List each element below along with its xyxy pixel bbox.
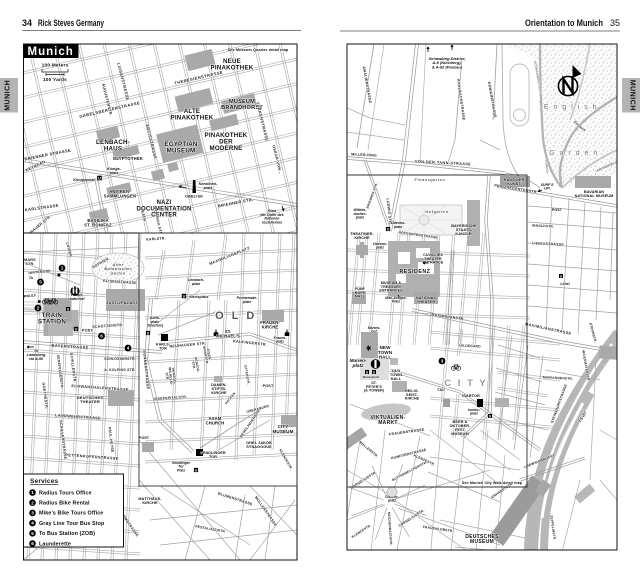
svg-text:JUSTIZPALAST: JUSTIZPALAST [106,300,138,305]
svg-text:RESIDENZ: RESIDENZ [399,269,430,275]
svg-text:4: 4 [31,521,34,526]
svg-text:Munich: Munich [28,46,74,58]
svg-text:NEWTOWNHALL: NEWTOWNHALL [378,345,393,360]
svg-text:U: U [195,469,198,473]
svg-text:U: U [75,328,78,332]
svg-text:Lehel: Lehel [560,282,570,286]
svg-text:Gray Line Tour Bus Stop: Gray Line Tour Bus Stop [39,521,105,527]
svg-text:Schwabing District,A-9 (Nürnbe: Schwabing District,A-9 (Nürnberg),& A-92… [428,56,465,69]
svg-text:MUNICH: MUNICH [5,80,12,111]
svg-text:Orientation to Munich: Orientation to Munich [525,18,603,29]
svg-text:MUSEUM &TREASURYENTRANCES: MUSEUM &TREASURYENTRANCES [379,281,403,293]
svg-text:Radius Bike Rental: Radius Bike Rental [39,501,90,507]
svg-text:A. KOLPING STR.: A. KOLPING STR. [104,368,135,372]
svg-text:FÜNFHÖFEMALL: FÜNFHÖFEMALL [355,286,366,299]
svg-text:See Museum Quarter detail map: See Museum Quarter detail map [228,48,289,52]
svg-text:35: 35 [610,18,620,29]
svg-text:6: 6 [31,541,34,546]
svg-text:HEILIG-GEIST-KIRCHE: HEILIG-GEIST-KIRCHE [405,389,420,401]
svg-text:EGYPTIANMUSEUM: EGYPTIANMUSEUM [164,141,198,155]
svg-text:OBELISK: OBELISK [185,195,203,199]
svg-text:To Bus Station (ZOB): To Bus Station (ZOB) [39,531,95,537]
svg-text:MUNICH: MUNICH [629,80,636,111]
svg-text:34: 34 [22,18,33,29]
svg-text:100 Yards: 100 Yards [43,77,67,83]
svg-text:E n g l i s h: E n g l i s h [544,104,598,111]
svg-text:BASILIKAST. BONIFAZ: BASILIKAST. BONIFAZ [84,218,112,227]
svg-text:Services: Services [30,478,59,485]
svg-text:Rick Steves Germany: Rick Steves Germany [38,18,104,29]
svg-text:POST: POST [139,436,150,440]
svg-text:6: 6 [100,334,103,339]
svg-text:GLYPTOTHEK: GLYPTOTHEK [113,156,143,161]
svg-text:ISARTOR: ISARTOR [462,394,480,398]
svg-text:1: 1 [31,490,34,495]
svg-text:4: 4 [127,346,130,351]
svg-text:C I T Y: C I T Y [444,378,487,389]
svg-text:O L D: O L D [215,310,257,322]
svg-text:Hofgarten: Hofgarten [425,209,448,214]
svg-text:Königsplatz: Königsplatz [73,178,95,182]
svg-text:3: 3 [441,359,444,364]
svg-text:U: U [387,228,390,232]
svg-text:MARSSTR.: MARSSTR. [24,258,36,266]
svg-text:5: 5 [39,280,42,285]
svg-text:G a r d e n: G a r d e n [549,150,599,157]
svg-text:100 Meters: 100 Meters [42,63,69,69]
svg-text:TRAINSTATION: TRAINSTATION [38,312,67,326]
svg-text:OHEL JAKOBSYNAGOGUE: OHEL JAKOBSYNAGOGUE [246,441,272,449]
svg-text:DEUTSCHESTHEATER: DEUTSCHESTHEATER [77,395,104,404]
svg-text:FRAUEN-KIRCHE: FRAUEN-KIRCHE [260,320,280,329]
svg-text:5: 5 [31,531,34,536]
svg-text:Finanzgarten: Finanzgarten [415,177,446,182]
svg-text:2: 2 [31,500,34,505]
svg-text:POST: POST [552,208,563,212]
svg-text:Mike’s Bike Tours Office: Mike’s Bike Tours Office [39,511,103,517]
svg-text:DAMEN-STIFTS-KIRCHE: DAMEN-STIFTS-KIRCHE [211,383,227,395]
svg-text:Karlsplatz: Karlsplatz [189,295,208,299]
svg-text:U: U [183,295,186,299]
svg-text:POST: POST [263,384,274,388]
svg-text:Marienplatz: Marienplatz [363,375,380,379]
svg-text:U: U [98,176,101,181]
svg-text:SCHLOSSERSTR.: SCHLOSSERSTR. [104,357,135,361]
svg-text:Radius Tours Office: Radius Tours Office [39,490,92,496]
svg-text:2: 2 [37,306,40,311]
svg-text:NATIONALTHEATER: NATIONALTHEATER [416,296,437,304]
svg-text:3: 3 [31,511,34,516]
svg-text:1: 1 [61,266,64,271]
svg-text:Launderette: Launderette [39,541,71,547]
